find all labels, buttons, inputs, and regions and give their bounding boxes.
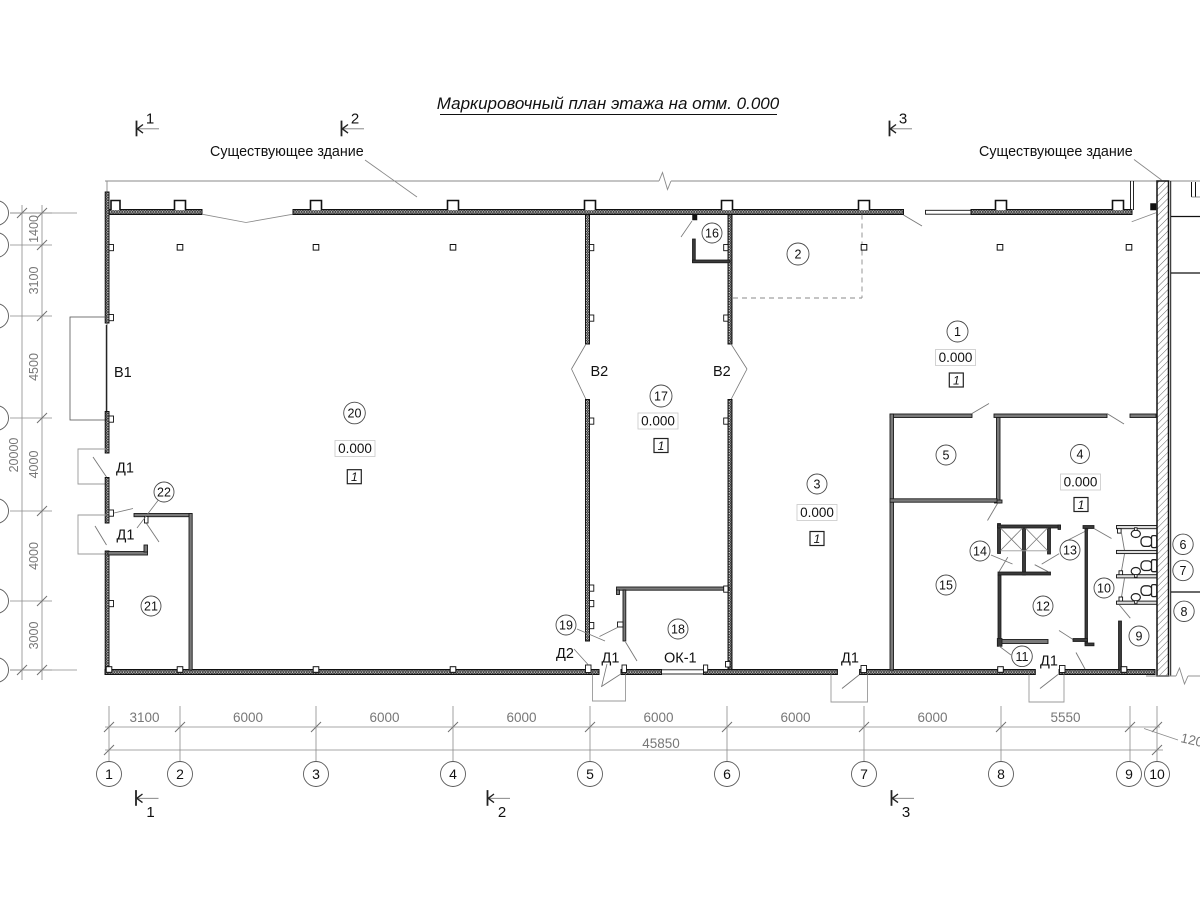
svg-text:5: 5: [943, 449, 950, 463]
svg-text:1: 1: [146, 804, 154, 821]
svg-text:0.000: 0.000: [338, 441, 372, 456]
svg-text:1: 1: [1078, 498, 1085, 512]
svg-text:9: 9: [1136, 630, 1143, 644]
svg-text:0.000: 0.000: [641, 414, 675, 429]
svg-text:15: 15: [939, 579, 953, 593]
svg-text:7: 7: [1180, 564, 1187, 578]
svg-text:ОК-1: ОК-1: [664, 651, 697, 667]
svg-text:21: 21: [144, 600, 158, 614]
svg-text:6000: 6000: [506, 710, 536, 725]
svg-text:2: 2: [351, 110, 359, 127]
svg-text:6: 6: [723, 766, 731, 782]
svg-text:2: 2: [795, 248, 802, 262]
svg-text:Д1: Д1: [116, 461, 134, 477]
svg-text:20: 20: [348, 407, 362, 421]
svg-text:8: 8: [1181, 605, 1188, 619]
svg-text:Д2: Д2: [556, 646, 574, 662]
svg-text:3: 3: [814, 478, 821, 492]
svg-text:20000: 20000: [7, 438, 21, 473]
svg-text:0.000: 0.000: [939, 350, 973, 365]
svg-text:6000: 6000: [369, 710, 399, 725]
svg-text:16: 16: [705, 227, 719, 241]
svg-text:3100: 3100: [129, 710, 159, 725]
svg-text:13: 13: [1063, 544, 1077, 558]
svg-text:6000: 6000: [917, 710, 947, 725]
svg-text:4500: 4500: [27, 353, 41, 381]
svg-text:1: 1: [146, 110, 154, 127]
svg-text:2: 2: [498, 804, 506, 821]
svg-text:10: 10: [1149, 766, 1165, 782]
svg-text:Д1: Д1: [602, 651, 620, 667]
svg-text:6000: 6000: [643, 710, 673, 725]
svg-text:3000: 3000: [27, 622, 41, 650]
svg-text:В2: В2: [713, 364, 731, 380]
svg-text:14: 14: [973, 545, 987, 559]
svg-text:3: 3: [312, 766, 320, 782]
svg-text:45850: 45850: [642, 736, 680, 751]
svg-text:1: 1: [814, 532, 821, 546]
svg-text:5: 5: [586, 766, 594, 782]
svg-text:3: 3: [902, 804, 910, 821]
svg-text:1: 1: [658, 439, 665, 453]
svg-text:17: 17: [654, 390, 668, 404]
svg-text:0.000: 0.000: [1064, 475, 1098, 490]
svg-text:Маркировочный план этажа на от: Маркировочный план этажа на отм. 0.000: [437, 94, 780, 113]
svg-text:1: 1: [351, 470, 358, 484]
svg-text:3: 3: [899, 110, 907, 127]
svg-text:1: 1: [954, 325, 961, 339]
svg-text:Д1: Д1: [1040, 654, 1058, 670]
svg-text:10: 10: [1097, 582, 1111, 596]
svg-text:3100: 3100: [27, 267, 41, 295]
svg-text:В2: В2: [591, 364, 609, 380]
svg-text:6: 6: [1180, 538, 1187, 552]
svg-text:1: 1: [105, 766, 113, 782]
svg-text:Существующее здание: Существующее здание: [979, 144, 1133, 160]
svg-text:1400: 1400: [27, 215, 41, 243]
svg-text:9: 9: [1125, 766, 1133, 782]
svg-text:12: 12: [1036, 600, 1050, 614]
svg-text:4: 4: [449, 766, 457, 782]
svg-text:Существующее здание: Существующее здание: [210, 144, 364, 160]
svg-text:6000: 6000: [233, 710, 263, 725]
svg-text:4: 4: [1077, 448, 1084, 462]
svg-text:4000: 4000: [27, 542, 41, 570]
svg-text:22: 22: [157, 486, 171, 500]
svg-text:7: 7: [860, 766, 868, 782]
svg-text:4000: 4000: [27, 451, 41, 479]
svg-text:5550: 5550: [1050, 710, 1080, 725]
svg-text:11: 11: [1016, 650, 1029, 664]
svg-text:1: 1: [953, 374, 960, 388]
svg-text:6000: 6000: [780, 710, 810, 725]
svg-text:18: 18: [671, 623, 685, 637]
svg-text:0.000: 0.000: [800, 505, 834, 520]
svg-text:В1: В1: [114, 365, 132, 381]
svg-text:Д1: Д1: [117, 528, 135, 544]
svg-text:19: 19: [559, 619, 573, 633]
svg-text:Д1: Д1: [841, 651, 859, 667]
svg-text:8: 8: [997, 766, 1005, 782]
svg-text:2: 2: [176, 766, 184, 782]
